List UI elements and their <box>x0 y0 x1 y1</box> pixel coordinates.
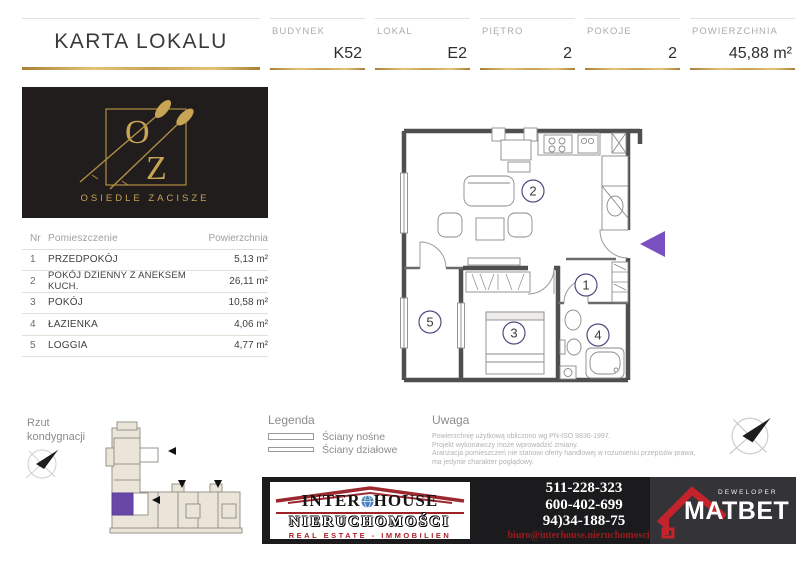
room-name: PRZEDPOKÓJ <box>48 254 206 265</box>
footer-bar: INTERHOUSE NIERUCHOMOŚCI REAL ESTATE - I… <box>262 477 796 544</box>
uwaga-title: Uwaga <box>432 413 469 427</box>
legend-item-load-walls: Ściany nośne <box>322 431 385 443</box>
room-name: ŁAZIENKA <box>48 319 206 330</box>
field-value: K52 <box>334 45 362 63</box>
interhouse-logo: INTERHOUSE NIERUCHOMOŚCI REAL ESTATE - I… <box>270 482 470 539</box>
room-label-loggia: 5 <box>426 315 433 330</box>
room-nr: 3 <box>22 297 48 308</box>
floor-plan-drawing-icon: 2 1 3 4 5 <box>388 98 763 403</box>
divider <box>375 18 470 19</box>
header-field-lokal: LOKAL E2 <box>375 18 470 70</box>
gold-divider <box>480 68 575 71</box>
divider <box>22 18 260 19</box>
room-name: LOGGIA <box>48 340 206 351</box>
agency-name-house: HOUSE <box>374 491 439 510</box>
entrance-arrow-icon <box>640 231 665 257</box>
field-label: POWIERZCHNIA <box>692 26 778 37</box>
table-row: 4 ŁAZIENKA 4,06 m² <box>22 314 268 336</box>
estate-name: OSIEDLE ZACISZE <box>81 193 210 204</box>
table-header-row: Nr Pomieszczenie Powierzchnia <box>22 228 268 250</box>
storey-plan <box>100 420 250 545</box>
room-area: 4,77 m² <box>206 340 268 351</box>
estate-logo: O Z OSIEDLE ZACISZE <box>22 87 268 218</box>
legend-title: Legenda <box>268 413 315 427</box>
load-wall-symbol-icon <box>268 433 314 440</box>
field-label: LOKAL <box>377 26 413 37</box>
room-nr: 4 <box>22 319 48 330</box>
divider <box>585 18 680 19</box>
table-row: 1 PRZEDPOKÓJ 5,13 m² <box>22 250 268 272</box>
room-area: 10,58 m² <box>206 297 268 308</box>
agency-subtitle: NIERUCHOMOŚCI <box>270 515 470 530</box>
gold-divider <box>375 68 470 71</box>
gold-divider <box>22 67 260 70</box>
header-field-pietro: PIĘTRO 2 <box>480 18 575 70</box>
room-nr: 5 <box>22 340 48 351</box>
room-nr: 2 <box>22 276 48 287</box>
rzut-label: Rzut kondygnacji <box>27 416 85 444</box>
field-value: 2 <box>563 45 572 63</box>
col-area: Powierzchnia <box>206 233 268 244</box>
title-block: KARTA LOKALU <box>22 18 260 70</box>
table-row: 3 POKÓJ 10,58 m² <box>22 293 268 315</box>
divider <box>480 18 575 19</box>
divider <box>270 18 365 19</box>
room-area: 4,06 m² <box>206 319 268 330</box>
uwaga-line: ma jedynie charakter poglądowy. <box>432 459 712 468</box>
field-value: 45,88 m² <box>729 45 792 63</box>
table-row: 2 POKÓJ DZIENNY Z ANEKSEM KUCH. 26,11 m² <box>22 271 268 293</box>
rzut-line1: Rzut <box>27 416 85 430</box>
room-label-living: 2 <box>529 184 536 199</box>
osiedle-zacisze-logo-icon: O Z OSIEDLE ZACISZE <box>22 87 268 218</box>
developer-label: DEWELOPER <box>718 489 778 496</box>
table-row: 5 LOGGIA 4,77 m² <box>22 336 268 358</box>
uwaga-text: Powierzchnię użytkową obliczono wg PN-IS… <box>432 433 712 467</box>
gold-divider <box>690 68 795 71</box>
field-value: 2 <box>668 45 677 63</box>
agency-tagline: REAL ESTATE - IMMOBILIEN <box>270 531 470 540</box>
divider <box>690 18 795 19</box>
field-label: PIĘTRO <box>482 26 523 37</box>
uwaga-line: Aranżacja pomieszczeń nie stanowi oferty… <box>432 450 712 459</box>
partition-wall-symbol-icon <box>268 447 314 452</box>
apartment-card: KARTA LOKALU BUDYNEK K52 LOKAL E2 PIĘTRO… <box>0 0 800 565</box>
field-label: BUDYNEK <box>272 26 325 37</box>
uwaga-line: Powierzchnię użytkową obliczono wg PN-IS… <box>432 433 712 442</box>
room-area: 5,13 m² <box>206 254 268 265</box>
header-field-budynek: BUDYNEK K52 <box>270 18 365 70</box>
gold-divider <box>585 68 680 71</box>
room-label-hall: 1 <box>582 278 589 293</box>
page-title: KARTA LOKALU <box>22 30 260 54</box>
header-field-powierzchnia: POWIERZCHNIA 45,88 m² <box>690 18 795 70</box>
col-nr: Nr <box>22 233 48 244</box>
compass-icon <box>20 442 64 491</box>
developer-name: MATBET <box>684 497 789 526</box>
rooms-table: Nr Pomieszczenie Powierzchnia 1 PRZEDPOK… <box>22 228 268 357</box>
field-label: POKOJE <box>587 26 632 37</box>
gold-divider <box>270 68 365 71</box>
uwaga-line: Projekt wykonawczy może wprowadzić zmian… <box>432 442 712 451</box>
col-name: Pomieszczenie <box>48 233 206 244</box>
room-name: POKÓJ DZIENNY Z ANEKSEM KUCH. <box>48 270 206 292</box>
room-area: 26,11 m² <box>206 276 268 287</box>
globe-icon <box>361 494 374 511</box>
room-label-bath: 4 <box>594 328 601 343</box>
highlighted-unit <box>112 493 133 515</box>
room-nr: 1 <box>22 254 48 265</box>
field-value: E2 <box>447 45 467 63</box>
header-field-pokoje: POKOJE 2 <box>585 18 680 70</box>
storey-plan-drawing-icon <box>100 420 250 540</box>
floor-plan: 2 1 3 4 5 <box>388 98 763 408</box>
room-label-bedroom: 3 <box>510 326 517 341</box>
logo-letter-z: Z <box>146 150 167 187</box>
compass-icon <box>722 408 778 469</box>
matbet-logo: DEWELOPER MATBET <box>650 477 796 544</box>
agency-name: INTERHOUSE <box>276 492 464 514</box>
agency-name-inter: INTER <box>302 491 361 510</box>
room-name: POKÓJ <box>48 297 206 308</box>
legend-item-partition-walls: Ściany działowe <box>322 444 397 456</box>
